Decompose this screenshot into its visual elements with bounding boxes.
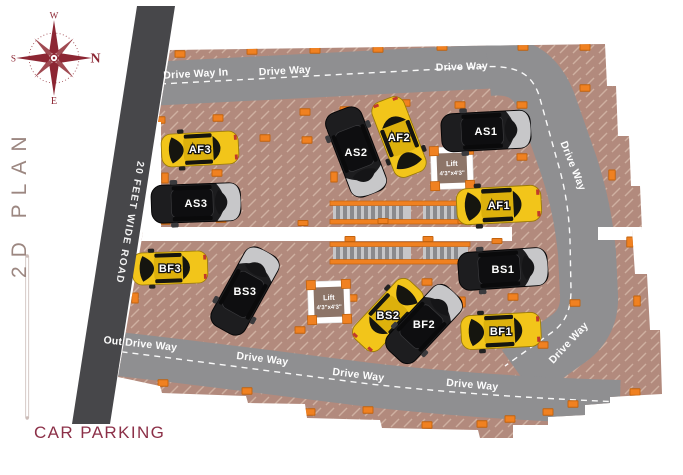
parking-plan: Lift4'3"x4'3"Lift4'3"x4'3"AF3AS3AS2AF2AS…	[0, 0, 683, 470]
lift-corner	[430, 181, 439, 190]
column-marker	[543, 409, 553, 416]
compass-letter-right: N	[91, 51, 101, 66]
column-marker	[422, 279, 432, 286]
column-marker	[331, 172, 338, 182]
column-marker	[627, 237, 634, 247]
lift-size-label: 4'3"x4'3"	[316, 305, 342, 312]
column-marker	[212, 170, 222, 177]
column-marker	[517, 102, 527, 109]
column-marker	[580, 85, 590, 92]
column-marker	[580, 44, 590, 51]
column-marker	[213, 115, 223, 122]
column-marker	[422, 422, 432, 429]
column-marker	[568, 401, 578, 408]
driveway-label: Drive Way	[436, 60, 489, 74]
car-label-BS3: BS3	[234, 286, 257, 298]
column-marker	[175, 51, 185, 58]
lift-size-label: 4'3"x4'3"	[439, 171, 465, 178]
column-marker	[132, 293, 139, 303]
compass-letter-top: W	[50, 10, 59, 20]
column-marker	[609, 170, 616, 180]
car-label-BS2: BS2	[377, 310, 400, 322]
lift-box: Lift4'3"x4'3"	[306, 279, 352, 325]
lift-corner	[306, 280, 315, 289]
column-marker	[508, 294, 518, 301]
column-marker	[517, 154, 527, 161]
column-marker	[634, 296, 641, 306]
joint-tick	[345, 237, 355, 242]
expansion-joint	[100, 227, 512, 241]
column-marker	[455, 102, 465, 109]
lift-label: Lift	[446, 159, 458, 168]
column-marker	[247, 48, 257, 55]
joint-tick	[492, 239, 502, 244]
car-label-BF1: BF1	[490, 326, 512, 338]
column-marker	[300, 109, 310, 116]
lift-corner	[307, 315, 316, 324]
column-marker	[242, 388, 252, 395]
car-label-AF3: AF3	[189, 144, 211, 156]
lift-label: Lift	[323, 293, 335, 302]
column-marker	[437, 44, 447, 51]
column-marker	[162, 173, 169, 183]
column-marker	[477, 421, 487, 428]
column-marker	[302, 137, 312, 144]
column-marker	[305, 409, 315, 416]
caption-car-parking: CAR PARKING	[34, 423, 165, 443]
column-marker	[570, 300, 580, 307]
plan-title: 2D PLAN	[8, 108, 32, 278]
compass-rose-icon: W N S E	[6, 10, 102, 106]
column-marker	[373, 46, 383, 53]
joint-tick	[423, 237, 433, 242]
column-marker	[518, 44, 528, 51]
column-marker	[295, 327, 305, 334]
joint-tick	[378, 219, 388, 224]
column-marker	[260, 135, 270, 142]
column-marker	[158, 380, 168, 387]
lift-corner	[429, 146, 438, 155]
expansion-joint-right	[598, 227, 646, 240]
car-label-BS1: BS1	[492, 264, 515, 276]
car-label-AF2: AF2	[388, 132, 410, 144]
car-label-BF3: BF3	[159, 263, 181, 275]
car-label-BF2: BF2	[413, 319, 435, 331]
column-marker	[363, 407, 373, 414]
compass-letter-left: S	[11, 54, 16, 64]
leader-line	[26, 254, 29, 419]
column-marker	[310, 47, 320, 54]
column-marker	[538, 342, 548, 349]
compass-letter-bottom: E	[51, 96, 57, 106]
car-label-AF1: AF1	[488, 200, 510, 212]
car-label-AS1: AS1	[475, 126, 498, 138]
column-marker	[505, 416, 515, 423]
lift-corner	[341, 279, 350, 288]
lift-corner	[342, 314, 351, 323]
joint-tick	[298, 221, 308, 226]
car-label-AS2: AS2	[345, 147, 368, 159]
plan-canvas: Lift4'3"x4'3"Lift4'3"x4'3"AF3AS3AS2AF2AS…	[0, 0, 683, 470]
car-label-AS3: AS3	[185, 198, 208, 210]
column-marker	[630, 389, 640, 396]
